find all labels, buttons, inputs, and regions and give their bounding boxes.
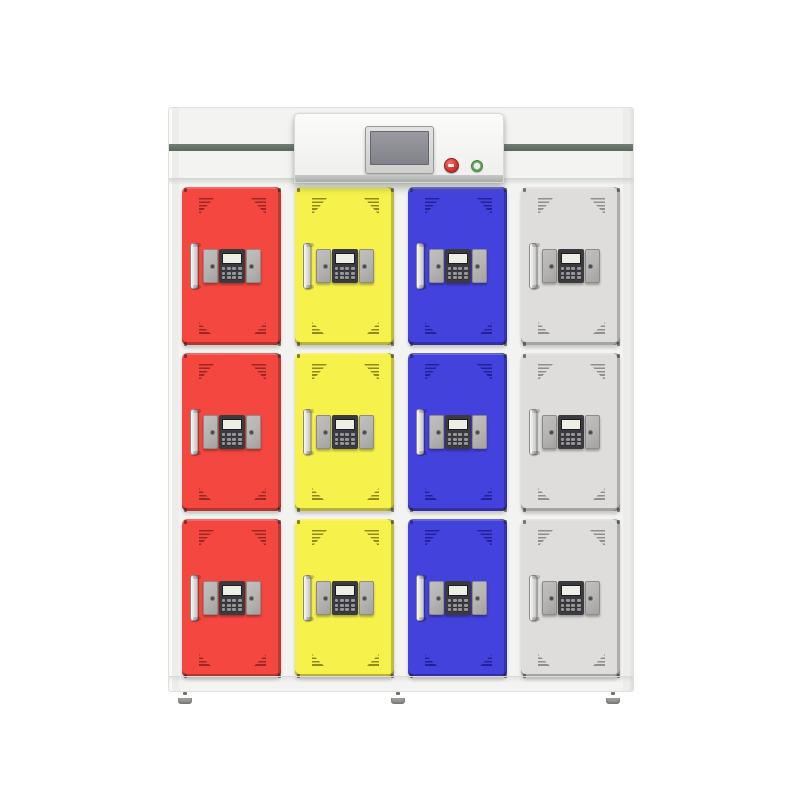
- keypad-key[interactable]: [464, 442, 468, 445]
- keypad-key[interactable]: [335, 433, 339, 436]
- vent-grille-icon: [425, 364, 440, 381]
- keypad-key[interactable]: [345, 604, 349, 607]
- hinge-pin: [523, 342, 526, 346]
- keypad-key[interactable]: [222, 272, 226, 275]
- keypad-key[interactable]: [232, 272, 236, 275]
- door-grid: [182, 187, 620, 677]
- keypad-key[interactable]: [351, 604, 355, 607]
- keypad[interactable]: [221, 433, 243, 445]
- keypad-lock[interactable]: [429, 581, 487, 615]
- vent-grille-icon: [425, 530, 440, 547]
- keypad-lock[interactable]: [316, 249, 374, 283]
- locker-door-red[interactable]: [182, 353, 281, 511]
- touchscreen-display[interactable]: [370, 131, 429, 165]
- lock-display: [561, 585, 581, 596]
- keypad-key[interactable]: [464, 608, 468, 611]
- keypad-key[interactable]: [238, 608, 242, 611]
- keypad-key[interactable]: [561, 604, 565, 607]
- keypad-key[interactable]: [232, 438, 236, 441]
- keypad-key[interactable]: [238, 272, 242, 275]
- door-handle[interactable]: [416, 409, 424, 455]
- lock-body: [332, 581, 358, 615]
- lock-side-plate: [472, 581, 487, 615]
- keypad-key[interactable]: [448, 599, 452, 602]
- keypad-key[interactable]: [453, 267, 457, 270]
- locker-door-yellow[interactable]: [295, 187, 394, 345]
- locker-door-blue[interactable]: [408, 187, 507, 345]
- keyhole-icon[interactable]: [549, 430, 554, 435]
- locker-door-white[interactable]: [521, 187, 620, 345]
- keypad-key[interactable]: [232, 267, 236, 270]
- door-handle[interactable]: [303, 243, 311, 289]
- keypad-key[interactable]: [453, 599, 457, 602]
- vent-grille-icon: [366, 322, 379, 335]
- lock-body: [558, 415, 584, 449]
- keypad[interactable]: [447, 433, 469, 445]
- keypad-key[interactable]: [335, 272, 339, 275]
- keypad-key[interactable]: [238, 433, 242, 436]
- keypad-key[interactable]: [335, 276, 339, 279]
- keypad-key[interactable]: [335, 267, 339, 270]
- keypad-key[interactable]: [577, 438, 581, 441]
- keypad-key[interactable]: [345, 276, 349, 279]
- vent-grille-icon: [199, 488, 212, 501]
- hinge-pin: [504, 188, 507, 192]
- hinge-pin: [523, 520, 526, 524]
- hinge-pin: [410, 354, 413, 358]
- keypad-key[interactable]: [561, 608, 565, 611]
- keypad-key[interactable]: [345, 433, 349, 436]
- vent-grille-icon: [199, 654, 212, 667]
- cabinet-foot: [178, 698, 192, 704]
- keypad-key[interactable]: [448, 604, 452, 607]
- keypad-key[interactable]: [577, 433, 581, 436]
- door-handle[interactable]: [190, 575, 198, 621]
- keyhole-icon[interactable]: [588, 430, 593, 435]
- locker-door-white[interactable]: [521, 519, 620, 677]
- keypad-key[interactable]: [464, 272, 468, 275]
- keypad-lock[interactable]: [316, 581, 374, 615]
- keypad-key[interactable]: [351, 433, 355, 436]
- keypad-key[interactable]: [232, 608, 236, 611]
- keypad-key[interactable]: [561, 267, 565, 270]
- keypad-key[interactable]: [577, 272, 581, 275]
- keyhole-icon[interactable]: [436, 264, 441, 269]
- keyhole-icon[interactable]: [475, 430, 480, 435]
- keypad-key[interactable]: [571, 604, 575, 607]
- keypad-key[interactable]: [340, 276, 344, 279]
- keypad-key[interactable]: [577, 267, 581, 270]
- locker-door-red[interactable]: [182, 187, 281, 345]
- locker-door-white[interactable]: [521, 353, 620, 511]
- hinge-pin: [297, 354, 300, 358]
- vent-grille-icon: [425, 198, 440, 215]
- vent-grille-icon: [366, 654, 379, 667]
- vent-grille-icon: [312, 198, 327, 215]
- keypad-key[interactable]: [335, 608, 339, 611]
- keypad-key[interactable]: [335, 604, 339, 607]
- lock-side-plate: [246, 249, 261, 283]
- keypad-key[interactable]: [340, 608, 344, 611]
- keyhole-icon[interactable]: [588, 264, 593, 269]
- keypad-key[interactable]: [345, 267, 349, 270]
- keypad-key[interactable]: [340, 442, 344, 445]
- keypad-key[interactable]: [448, 267, 452, 270]
- keypad-key[interactable]: [458, 276, 462, 279]
- keypad-key[interactable]: [340, 433, 344, 436]
- keyhole-icon[interactable]: [362, 596, 367, 601]
- lock-side-plate: [246, 415, 261, 449]
- keyhole-icon[interactable]: [249, 264, 254, 269]
- keyhole-icon[interactable]: [323, 430, 328, 435]
- keypad-key[interactable]: [227, 272, 231, 275]
- hinge-pin: [184, 520, 187, 524]
- keypad-key[interactable]: [464, 267, 468, 270]
- keypad-key[interactable]: [571, 442, 575, 445]
- keypad-key[interactable]: [448, 272, 452, 275]
- keypad-key[interactable]: [571, 433, 575, 436]
- keypad-key[interactable]: [335, 438, 339, 441]
- lock-display: [561, 419, 581, 430]
- keypad-key[interactable]: [222, 438, 226, 441]
- keypad-key[interactable]: [566, 267, 570, 270]
- keypad-key[interactable]: [566, 599, 570, 602]
- vent-grille-icon: [477, 198, 492, 215]
- keypad-key[interactable]: [227, 433, 231, 436]
- keypad-key[interactable]: [561, 433, 565, 436]
- keypad-lock[interactable]: [429, 249, 487, 283]
- keypad-key[interactable]: [577, 604, 581, 607]
- keypad[interactable]: [560, 599, 582, 611]
- keypad[interactable]: [334, 267, 356, 279]
- keypad-key[interactable]: [561, 442, 565, 445]
- vent-grille-icon: [538, 322, 551, 335]
- lock-side-plate: [585, 581, 600, 615]
- hinge-pin: [504, 354, 507, 358]
- keypad-key[interactable]: [238, 438, 242, 441]
- keypad-key[interactable]: [351, 276, 355, 279]
- keypad-key[interactable]: [222, 276, 226, 279]
- keypad-key[interactable]: [340, 438, 344, 441]
- hinge-pin: [278, 342, 281, 346]
- keypad-key[interactable]: [222, 267, 226, 270]
- keypad-key[interactable]: [340, 599, 344, 602]
- keypad-lock[interactable]: [316, 415, 374, 449]
- keyhole-icon[interactable]: [362, 430, 367, 435]
- keypad-key[interactable]: [566, 608, 570, 611]
- keyhole-icon[interactable]: [436, 430, 441, 435]
- control-panel: [294, 113, 504, 183]
- hinge-pin: [391, 354, 394, 358]
- hinge-pin: [297, 520, 300, 524]
- keypad-key[interactable]: [232, 442, 236, 445]
- keypad-key[interactable]: [227, 442, 231, 445]
- keypad-key[interactable]: [345, 438, 349, 441]
- keypad[interactable]: [447, 267, 469, 279]
- keypad-key[interactable]: [222, 442, 226, 445]
- keypad-key[interactable]: [453, 604, 457, 607]
- keypad-key[interactable]: [448, 433, 452, 436]
- keypad-key[interactable]: [458, 438, 462, 441]
- keypad-key[interactable]: [577, 599, 581, 602]
- keypad-key[interactable]: [561, 438, 565, 441]
- door-handle[interactable]: [529, 409, 537, 455]
- lock-side-plate: [585, 249, 600, 283]
- vent-grille-icon: [592, 654, 605, 667]
- keypad-key[interactable]: [464, 438, 468, 441]
- keypad-key[interactable]: [566, 442, 570, 445]
- keypad-key[interactable]: [227, 608, 231, 611]
- lock-side-plate: [246, 581, 261, 615]
- keypad-key[interactable]: [222, 604, 226, 607]
- keypad-key[interactable]: [458, 272, 462, 275]
- keypad[interactable]: [334, 433, 356, 445]
- lock-body: [219, 249, 245, 283]
- keypad-key[interactable]: [345, 442, 349, 445]
- keypad-key[interactable]: [351, 608, 355, 611]
- keypad-key[interactable]: [238, 276, 242, 279]
- keypad-key[interactable]: [227, 604, 231, 607]
- keypad-key[interactable]: [222, 599, 226, 602]
- keypad-key[interactable]: [571, 608, 575, 611]
- door-handle[interactable]: [303, 575, 311, 621]
- keyhole-icon[interactable]: [549, 596, 554, 601]
- keypad-key[interactable]: [566, 272, 570, 275]
- vent-grille-icon: [592, 488, 605, 501]
- lock-display: [222, 585, 242, 596]
- keypad-key[interactable]: [351, 438, 355, 441]
- keypad-key[interactable]: [345, 608, 349, 611]
- vent-grille-icon: [538, 530, 553, 547]
- keypad-key[interactable]: [222, 608, 226, 611]
- hinge-pin: [184, 342, 187, 346]
- keypad[interactable]: [560, 267, 582, 279]
- keypad-key[interactable]: [340, 604, 344, 607]
- door-handle[interactable]: [529, 575, 537, 621]
- keyhole-icon[interactable]: [210, 430, 215, 435]
- keypad-key[interactable]: [335, 599, 339, 602]
- keypad-lock[interactable]: [429, 415, 487, 449]
- keypad-key[interactable]: [571, 438, 575, 441]
- keypad-key[interactable]: [571, 276, 575, 279]
- keyhole-icon[interactable]: [475, 596, 480, 601]
- keypad-key[interactable]: [458, 442, 462, 445]
- keypad-key[interactable]: [458, 267, 462, 270]
- keypad-lock[interactable]: [203, 249, 261, 283]
- door-handle[interactable]: [416, 243, 424, 289]
- vent-grille-icon: [364, 198, 379, 215]
- hinge-pin: [410, 520, 413, 524]
- vent-grille-icon: [199, 322, 212, 335]
- keypad-key[interactable]: [238, 604, 242, 607]
- keyhole-icon[interactable]: [323, 596, 328, 601]
- keypad-lock[interactable]: [542, 581, 600, 615]
- keypad-key[interactable]: [566, 604, 570, 607]
- keypad-key[interactable]: [458, 599, 462, 602]
- keypad-key[interactable]: [464, 276, 468, 279]
- keypad-key[interactable]: [458, 604, 462, 607]
- keypad-key[interactable]: [453, 276, 457, 279]
- hinge-pin: [297, 342, 300, 346]
- keyhole-icon[interactable]: [210, 264, 215, 269]
- keypad-key[interactable]: [464, 599, 468, 602]
- keypad-key[interactable]: [448, 276, 452, 279]
- keyhole-icon[interactable]: [436, 596, 441, 601]
- locker-door-blue[interactable]: [408, 353, 507, 511]
- keypad-key[interactable]: [232, 604, 236, 607]
- keypad-key[interactable]: [561, 276, 565, 279]
- keypad-key[interactable]: [351, 442, 355, 445]
- vent-grille-icon: [312, 488, 325, 501]
- keyhole-icon[interactable]: [249, 430, 254, 435]
- keypad-key[interactable]: [345, 599, 349, 602]
- keypad-key[interactable]: [453, 433, 457, 436]
- keypad-key[interactable]: [453, 608, 457, 611]
- keypad-key[interactable]: [227, 267, 231, 270]
- keypad-key[interactable]: [571, 272, 575, 275]
- vent-grille-icon: [312, 364, 327, 381]
- keypad-key[interactable]: [345, 272, 349, 275]
- keypad-key[interactable]: [232, 276, 236, 279]
- lock-display: [561, 253, 581, 264]
- keypad-key[interactable]: [340, 272, 344, 275]
- keypad-key[interactable]: [232, 599, 236, 602]
- keypad[interactable]: [447, 599, 469, 611]
- hinge-pin: [617, 342, 620, 346]
- door-handle[interactable]: [190, 243, 198, 289]
- keypad-key[interactable]: [238, 599, 242, 602]
- keypad-key[interactable]: [577, 276, 581, 279]
- hinge-pin: [391, 342, 394, 346]
- locker-door-yellow[interactable]: [295, 519, 394, 677]
- hinge-pin: [523, 508, 526, 512]
- hinge-pin: [278, 188, 281, 192]
- power-button[interactable]: [471, 160, 483, 172]
- keypad-key[interactable]: [571, 267, 575, 270]
- hinge-pin: [184, 508, 187, 512]
- keypad-key[interactable]: [232, 433, 236, 436]
- keypad-key[interactable]: [448, 438, 452, 441]
- lock-body: [332, 415, 358, 449]
- vent-grille-icon: [312, 654, 325, 667]
- keypad-key[interactable]: [238, 442, 242, 445]
- keypad[interactable]: [221, 267, 243, 279]
- keypad-key[interactable]: [566, 438, 570, 441]
- keypad-key[interactable]: [448, 608, 452, 611]
- keypad[interactable]: [334, 599, 356, 611]
- keypad-key[interactable]: [351, 267, 355, 270]
- keypad-key[interactable]: [561, 599, 565, 602]
- lock-side-plate: [585, 415, 600, 449]
- lock-display: [448, 253, 468, 264]
- keypad-key[interactable]: [227, 276, 231, 279]
- keypad-key[interactable]: [351, 599, 355, 602]
- keyhole-icon[interactable]: [362, 264, 367, 269]
- lock-side-plate: [359, 249, 374, 283]
- keypad-key[interactable]: [577, 442, 581, 445]
- lock-display: [448, 419, 468, 430]
- keypad-key[interactable]: [227, 599, 231, 602]
- lock-display: [222, 253, 242, 264]
- keypad-key[interactable]: [340, 267, 344, 270]
- keypad-key[interactable]: [222, 433, 226, 436]
- keypad-key[interactable]: [351, 272, 355, 275]
- lock-body: [219, 415, 245, 449]
- hinge-pin: [504, 342, 507, 346]
- hinge-pin: [391, 520, 394, 524]
- door-handle[interactable]: [303, 409, 311, 455]
- lock-side-plate: [203, 581, 218, 615]
- keypad-key[interactable]: [571, 599, 575, 602]
- keypad-key[interactable]: [227, 438, 231, 441]
- keypad-key[interactable]: [464, 604, 468, 607]
- locker-door-red[interactable]: [182, 519, 281, 677]
- keypad-key[interactable]: [577, 608, 581, 611]
- emergency-stop-button[interactable]: [444, 158, 459, 173]
- keypad-key[interactable]: [453, 272, 457, 275]
- keypad-key[interactable]: [453, 438, 457, 441]
- vent-grille-icon: [479, 488, 492, 501]
- keypad-key[interactable]: [561, 272, 565, 275]
- lock-display: [335, 419, 355, 430]
- door-handle[interactable]: [416, 575, 424, 621]
- keyhole-icon[interactable]: [549, 264, 554, 269]
- keypad-lock[interactable]: [542, 249, 600, 283]
- lock-display: [222, 419, 242, 430]
- keypad-key[interactable]: [448, 442, 452, 445]
- keyhole-icon[interactable]: [323, 264, 328, 269]
- keyhole-icon[interactable]: [475, 264, 480, 269]
- hinge-pin: [184, 188, 187, 192]
- lock-side-plate: [542, 415, 557, 449]
- vent-grille-icon: [364, 530, 379, 547]
- keypad-key[interactable]: [464, 433, 468, 436]
- keypad-key[interactable]: [335, 442, 339, 445]
- keyhole-icon[interactable]: [249, 596, 254, 601]
- keypad[interactable]: [221, 599, 243, 611]
- keyhole-icon[interactable]: [210, 596, 215, 601]
- keypad[interactable]: [560, 433, 582, 445]
- keypad-key[interactable]: [453, 442, 457, 445]
- hinge-pin: [391, 188, 394, 192]
- hinge-pin: [410, 188, 413, 192]
- keypad-lock[interactable]: [542, 415, 600, 449]
- hinge-pin: [504, 520, 507, 524]
- lock-side-plate: [429, 249, 444, 283]
- panel-bottom-trim: [295, 175, 503, 182]
- door-handle[interactable]: [529, 243, 537, 289]
- vent-grille-icon: [538, 364, 553, 381]
- locker-door-yellow[interactable]: [295, 353, 394, 511]
- locker-door-blue[interactable]: [408, 519, 507, 677]
- door-handle[interactable]: [190, 409, 198, 455]
- keypad-lock[interactable]: [203, 581, 261, 615]
- keypad-key[interactable]: [566, 276, 570, 279]
- hinge-pin: [278, 520, 281, 524]
- keypad-key[interactable]: [458, 433, 462, 436]
- lock-side-plate: [542, 249, 557, 283]
- vent-grille-icon: [477, 530, 492, 547]
- keypad-lock[interactable]: [203, 415, 261, 449]
- keypad-key[interactable]: [238, 267, 242, 270]
- keypad-key[interactable]: [566, 433, 570, 436]
- hinge-pin: [410, 342, 413, 346]
- lock-body: [558, 249, 584, 283]
- lock-display: [448, 585, 468, 596]
- keypad-key[interactable]: [458, 608, 462, 611]
- hinge-pin: [617, 508, 620, 512]
- keyhole-icon[interactable]: [588, 596, 593, 601]
